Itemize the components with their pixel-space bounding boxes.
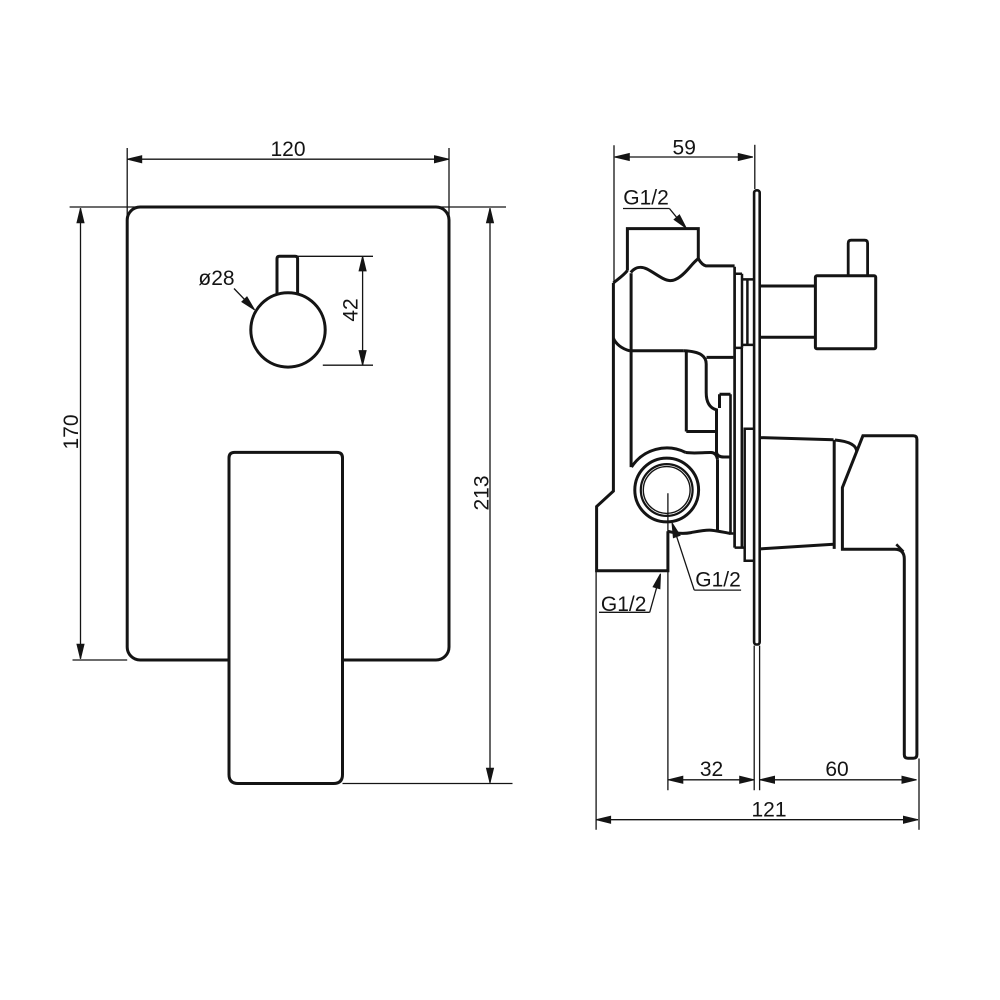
svg-text:170: 170 bbox=[60, 414, 83, 449]
svg-text:213: 213 bbox=[471, 475, 494, 510]
svg-text:G1/2: G1/2 bbox=[695, 569, 741, 592]
svg-text:42: 42 bbox=[340, 298, 363, 321]
svg-text:32: 32 bbox=[700, 758, 723, 781]
svg-text:121: 121 bbox=[751, 799, 786, 822]
svg-text:ø28: ø28 bbox=[198, 267, 234, 290]
svg-text:120: 120 bbox=[270, 138, 305, 161]
svg-text:60: 60 bbox=[825, 758, 848, 781]
svg-text:G1/2: G1/2 bbox=[623, 186, 669, 209]
svg-text:59: 59 bbox=[673, 137, 696, 160]
